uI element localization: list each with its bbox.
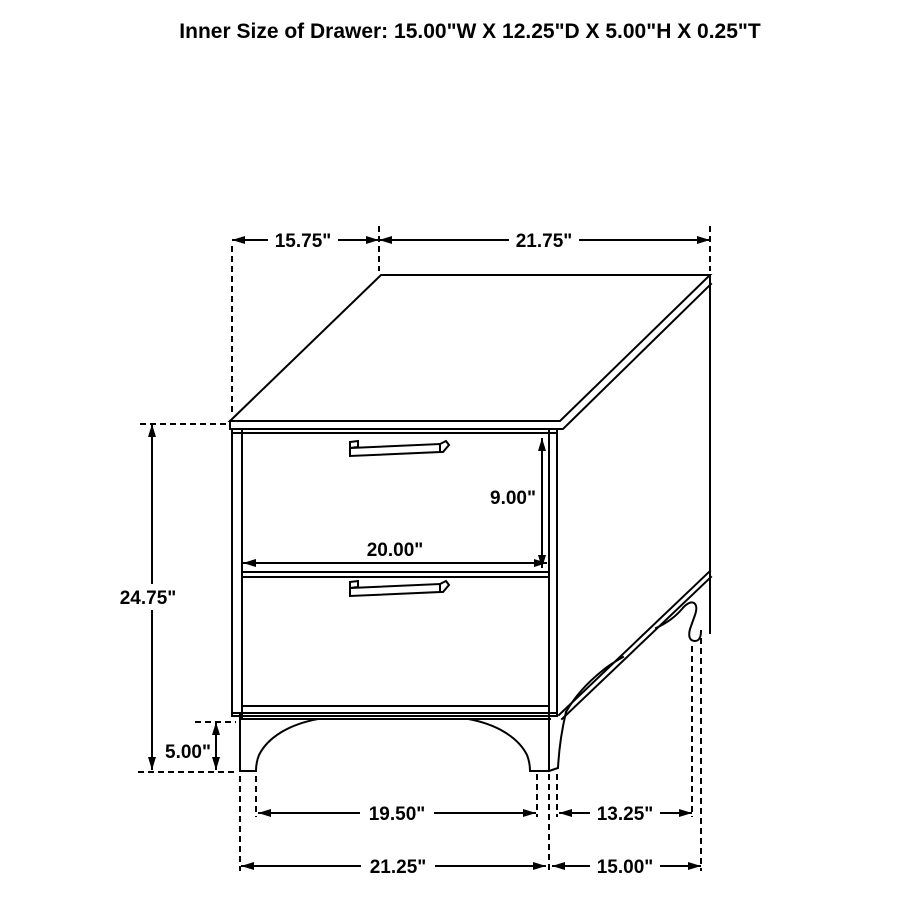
dim-overall-height-label: 24.75" <box>120 588 177 609</box>
dim-overall-depth-label: 15.00" <box>597 857 654 878</box>
front-left-leg <box>240 715 318 771</box>
dimension-diagram: Inner Size of Drawer: 15.00"W X 12.25"D … <box>0 0 900 900</box>
dim-leg-height-label: 5.00" <box>165 742 211 763</box>
dim-front-leg-spacing-label: 19.50" <box>369 804 426 825</box>
dim-side-leg-spacing-label: 13.25" <box>597 804 654 825</box>
dim-side-leg-spacing: 13.25" <box>559 804 692 825</box>
dim-top-width: 21.75" <box>379 226 710 271</box>
front-right-leg-side <box>549 712 566 771</box>
front-right-leg <box>468 719 549 771</box>
nightstand-drawing <box>230 275 711 771</box>
dim-front-leg-spacing: 19.50" <box>258 804 536 825</box>
dim-overall-height: 24.75" <box>120 424 236 772</box>
dim-overall-width-label: 21.25" <box>370 857 427 878</box>
dim-overall-depth: 15.00" <box>552 857 701 878</box>
dim-top-depth-label: 15.75" <box>275 231 332 252</box>
dim-leg-height: 5.00" <box>165 722 236 770</box>
page-title: Inner Size of Drawer: 15.00"W X 12.25"D … <box>179 20 761 43</box>
dim-top-width-label: 21.75" <box>516 231 573 252</box>
dim-drawer-width-label: 20.00" <box>367 540 424 561</box>
drawing-canvas: Inner Size of Drawer: 15.00"W X 12.25"D … <box>0 0 900 900</box>
dim-overall-width: 21.25" <box>241 857 546 878</box>
dim-drawer-height-label: 9.00" <box>490 488 536 509</box>
